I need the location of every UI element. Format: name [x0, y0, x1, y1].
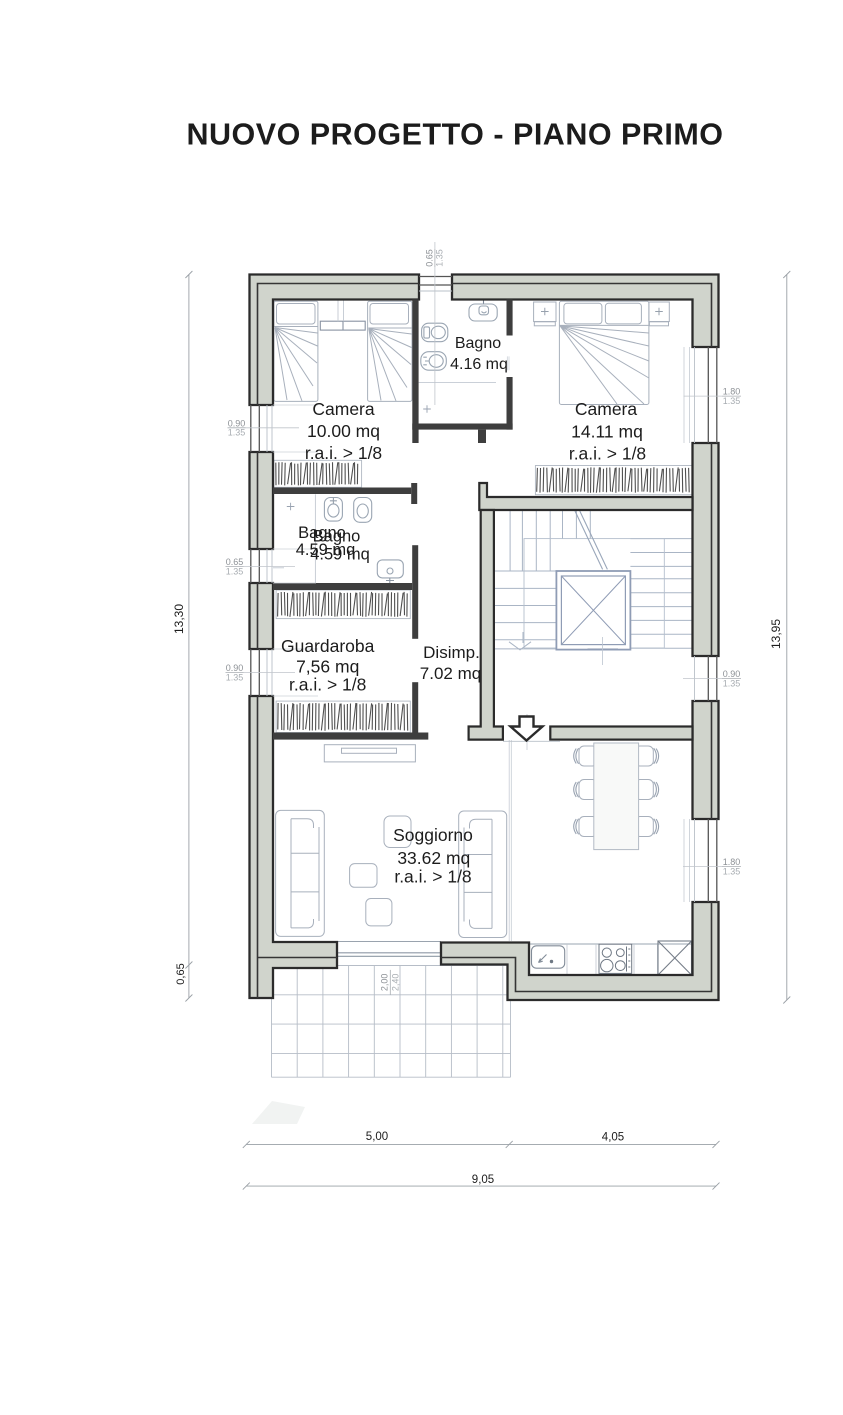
svg-text:14.11 mq: 14.11 mq [571, 422, 643, 442]
svg-text:r.a.i. > 1/8: r.a.i. > 1/8 [394, 867, 471, 887]
svg-text:Bagno: Bagno [313, 528, 361, 546]
svg-text:Disimp.: Disimp. [423, 643, 480, 662]
svg-text:Guardaroba: Guardaroba [281, 636, 375, 656]
svg-text:33.62 mq: 33.62 mq [397, 848, 470, 868]
svg-text:7,56 mq: 7,56 mq [296, 657, 359, 677]
svg-text:4.59 mq: 4.59 mq [310, 546, 370, 564]
svg-text:9,05: 9,05 [472, 1174, 494, 1186]
svg-text:13,30: 13,30 [172, 604, 186, 634]
svg-text:Bagno: Bagno [455, 335, 501, 352]
svg-text:2,40: 2,40 [390, 974, 400, 992]
svg-text:4,05: 4,05 [602, 1132, 624, 1144]
svg-text:2,00: 2,00 [380, 974, 390, 992]
svg-text:7.02 mq: 7.02 mq [420, 664, 481, 683]
svg-text:1.35: 1.35 [723, 396, 741, 406]
svg-text:1.35: 1.35 [723, 678, 741, 688]
svg-text:NUOVO PROGETTO - PIANO PRIMO: NUOVO PROGETTO - PIANO PRIMO [186, 118, 723, 152]
svg-text:r.a.i. > 1/8: r.a.i. > 1/8 [289, 675, 366, 695]
svg-text:5,00: 5,00 [366, 1131, 388, 1143]
svg-text:0,65: 0,65 [175, 963, 187, 984]
svg-text:r.a.i. > 1/8: r.a.i. > 1/8 [305, 443, 382, 463]
svg-text:0.65: 0.65 [424, 249, 434, 267]
svg-text:r.a.i. > 1/8: r.a.i. > 1/8 [569, 444, 646, 464]
svg-text:Camera: Camera [312, 399, 375, 419]
svg-text:1.35: 1.35 [228, 428, 246, 438]
svg-text:1.35: 1.35 [434, 249, 444, 267]
svg-text:13,95: 13,95 [769, 619, 783, 649]
svg-text:1.35: 1.35 [723, 866, 741, 876]
svg-text:Soggiorno: Soggiorno [393, 825, 473, 845]
svg-text:1.35: 1.35 [226, 672, 244, 682]
svg-text:Camera: Camera [575, 399, 638, 419]
svg-text:4.16 mq: 4.16 mq [450, 356, 508, 373]
svg-text:1.35: 1.35 [226, 566, 244, 576]
svg-text:10.00 mq: 10.00 mq [307, 421, 380, 441]
